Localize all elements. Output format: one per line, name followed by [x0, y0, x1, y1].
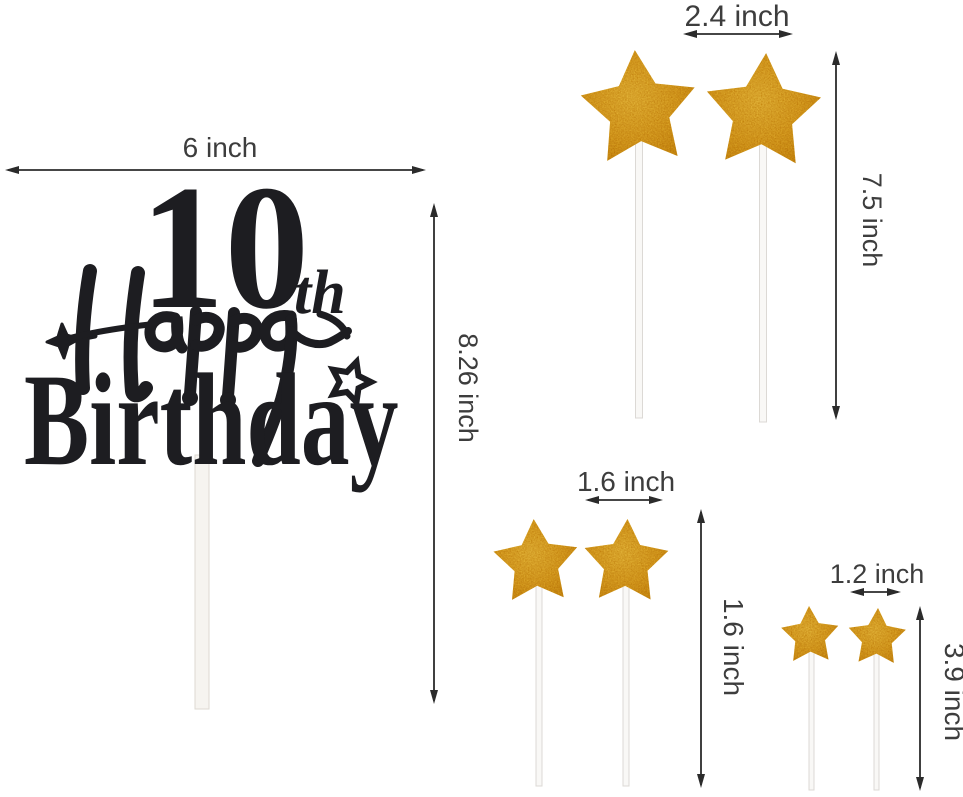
- svg-text:3.9 inch: 3.9 inch: [939, 643, 963, 741]
- svg-text:1.6 inch: 1.6 inch: [718, 598, 749, 696]
- svg-text:1.6 inch: 1.6 inch: [577, 466, 675, 497]
- svg-text:7.5 inch: 7.5 inch: [857, 173, 887, 268]
- svg-text:1.2 inch: 1.2 inch: [830, 559, 925, 589]
- svg-text:2.4 inch: 2.4 inch: [684, 0, 789, 33]
- svg-text:8.26 inch: 8.26 inch: [453, 333, 483, 443]
